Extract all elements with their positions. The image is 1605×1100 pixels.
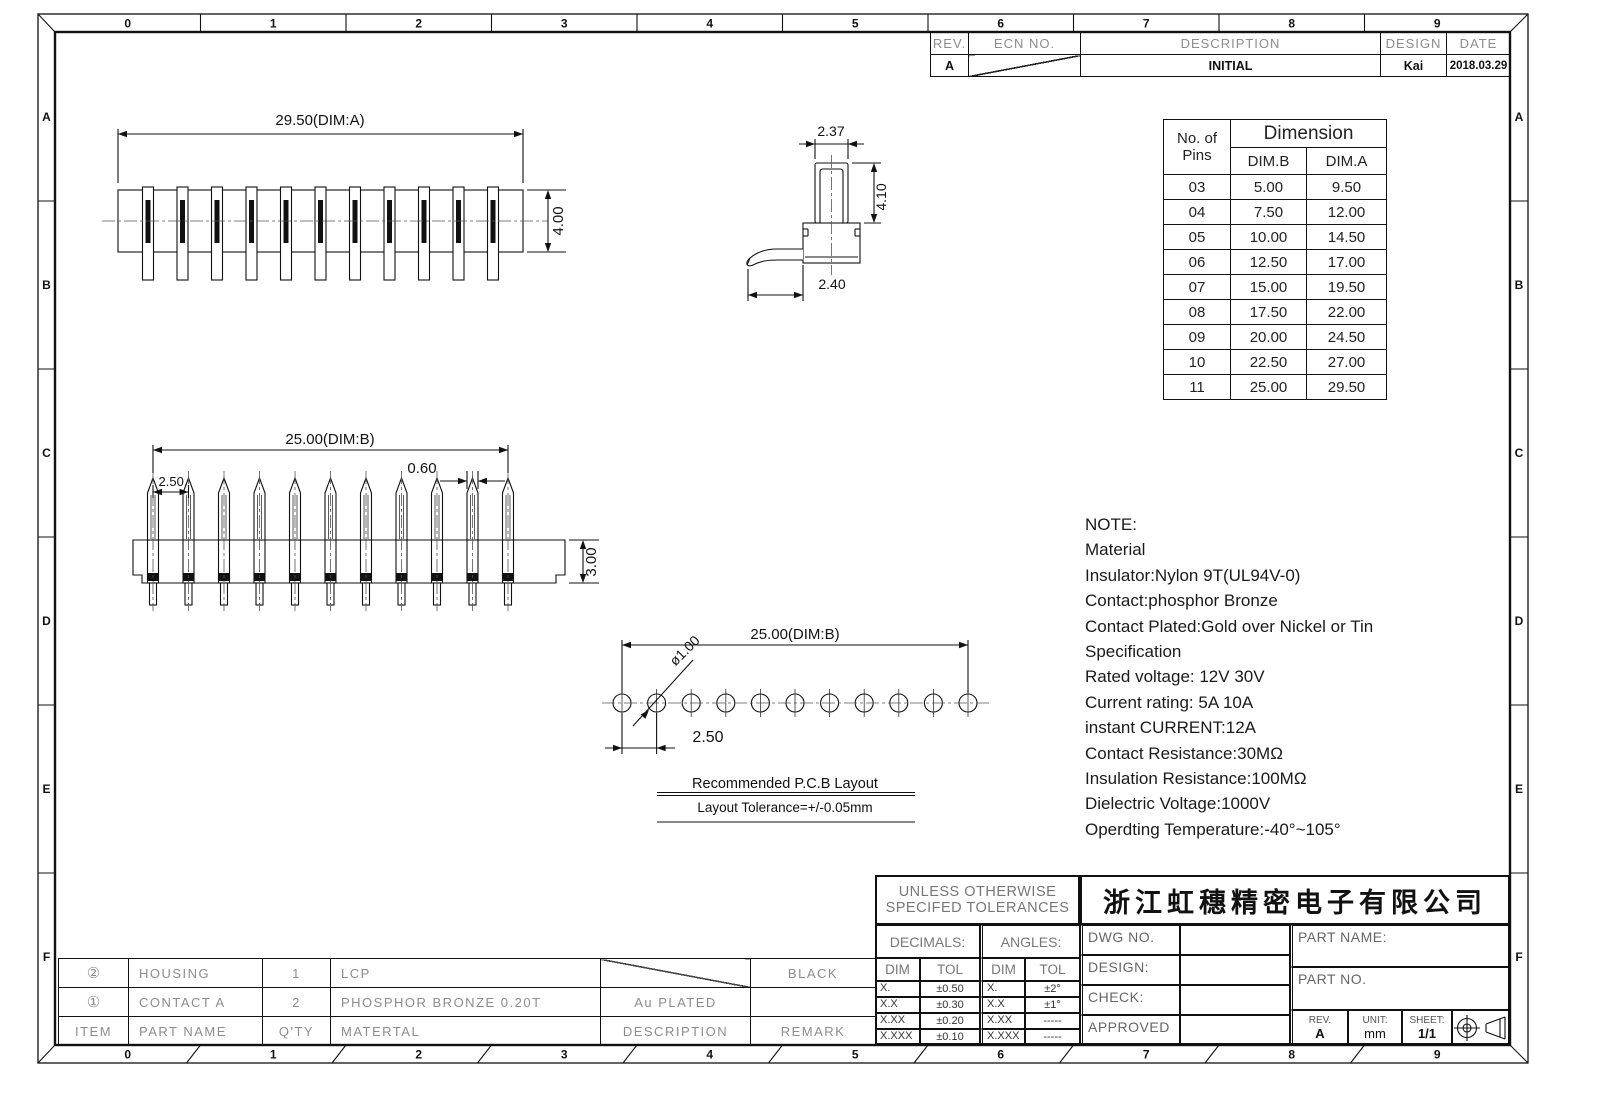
table-row: 0715.0019.50 [1164, 275, 1387, 300]
dim-label: A [42, 110, 51, 124]
parts-header-row: ITEM PART NAME Q'TY MATERTAL DESCRIPTION… [59, 1017, 876, 1046]
tol-val: ±0.10 [920, 1029, 980, 1045]
dim-label: F [1515, 950, 1522, 964]
date-value: 2018.03.29 [1447, 55, 1511, 77]
note-line: Insulator:Nylon 9T(UL94V-0) [1085, 563, 1525, 588]
dim-label: 0.60 [407, 460, 436, 477]
dim-label: 3 [561, 1048, 568, 1062]
dim-label: A [1515, 110, 1524, 124]
dim-label: 6 [997, 17, 1004, 31]
tol-dim: X. [980, 981, 1025, 997]
tol-val: ±0.50 [920, 981, 980, 997]
dim-label: 2.50 [692, 729, 723, 746]
dim-label: 7 [1143, 1048, 1150, 1062]
dim-label: 2 [415, 1048, 422, 1062]
ecn-value [969, 55, 1081, 77]
tol-val: ----- [1025, 1029, 1080, 1045]
tol-val: ±1° [1025, 997, 1080, 1013]
ecn-header: ECN NO. [969, 33, 1081, 55]
note-line: Specification [1085, 639, 1525, 664]
dimb-header: DIM.B [1231, 148, 1307, 175]
tol-val: ±2° [1025, 981, 1080, 997]
pins-header: No. of Pins [1164, 120, 1231, 175]
projection-symbol-icon [1452, 1010, 1510, 1045]
dim-label: ø1.00 [666, 632, 703, 669]
rev-field: REV.A [1290, 1010, 1348, 1045]
date-header: DATE [1447, 33, 1511, 55]
table-row: ② HOUSING 1 LCP BLACK [59, 959, 876, 988]
dim-label: 8 [1288, 17, 1295, 31]
rev-header: REV. [931, 33, 969, 55]
note-line: Operdting Temperature:-40°~105° [1085, 817, 1525, 842]
tol-dim: X.XX [875, 1013, 920, 1029]
table-row: 0920.0024.50 [1164, 325, 1387, 350]
dim-label: Recommended P.C.B Layout [692, 776, 878, 792]
dim-label: 8 [1288, 1048, 1295, 1062]
design-value [1180, 955, 1290, 985]
dim-label: B [1515, 278, 1524, 292]
dim-label: 7 [1143, 17, 1150, 31]
dim-label: 25.00(DIM:B) [285, 431, 374, 448]
unit-field: UNIT:mm [1348, 1010, 1402, 1045]
dim-label: 4.10 [873, 183, 889, 210]
note-line: Insulation Resistance:100MΩ [1085, 766, 1525, 791]
dim-label: C [1515, 446, 1524, 460]
tol-header: TOL [920, 958, 980, 981]
note-line: Contact Plated:Gold over Nickel or Tin [1085, 614, 1525, 639]
notes-block: NOTE: Material Insulator:Nylon 9T(UL94V-… [1085, 512, 1525, 842]
dim-label: 9 [1434, 1048, 1441, 1062]
dwg-no-value [1180, 925, 1290, 955]
note-line: NOTE: [1085, 512, 1525, 537]
company-name: 浙江虹穗精密电子有限公司 [1080, 875, 1510, 925]
tol-val: ±0.20 [920, 1013, 980, 1029]
tol-val: ----- [1025, 1013, 1080, 1029]
angles-label: ANGLES: [980, 925, 1080, 958]
dimension-table: No. of Pins Dimension DIM.B DIM.A 035.00… [1163, 119, 1387, 400]
tol-dim: X.XXX [980, 1029, 1025, 1045]
note-line: Contact Resistance:30MΩ [1085, 741, 1525, 766]
note-line: Material [1085, 537, 1525, 562]
dim-label: 3.00 [583, 547, 600, 576]
note-line: Dielectric Voltage:1000V [1085, 791, 1525, 816]
dim-label: 4 [706, 17, 713, 31]
dim-header: DIM [980, 958, 1025, 981]
approved-value [1180, 1015, 1290, 1045]
description-header: DESCRIPTION [1081, 33, 1381, 55]
dim-label: 2.50. [159, 474, 188, 489]
design-label: DESIGN: [1080, 955, 1180, 985]
table-row: 035.009.50 [1164, 175, 1387, 200]
sheet-field: SHEET:1/1 [1402, 1010, 1452, 1045]
table-row: ① CONTACT A 2 PHOSPHOR BRONZE 0.20T Au P… [59, 988, 876, 1017]
note-line: instant CURRENT:12A [1085, 715, 1525, 740]
check-value [1180, 985, 1290, 1015]
dim-label: 0 [124, 17, 131, 31]
tol-dim: X.XX [980, 1013, 1025, 1029]
design-header: DESIGN [1381, 33, 1447, 55]
table-row: 0510.0014.50 [1164, 225, 1387, 250]
decimals-label: DECIMALS: [875, 925, 980, 958]
dim-label: F [43, 950, 50, 964]
tol-val: ±0.30 [920, 997, 980, 1013]
table-row: 0817.5022.00 [1164, 300, 1387, 325]
dim-label: B [42, 278, 51, 292]
dim-label: 0 [124, 1048, 131, 1062]
pcb-layout-view: 25.00(DIM:B)ø1.002.50Recommended P.C.B L… [600, 618, 1020, 833]
dim-label: 5 [852, 1048, 859, 1062]
dim-label: 6 [997, 1048, 1004, 1062]
drawing-sheet: 01234567890123456789ABCDEFABCDEF 29.50(D… [0, 0, 1605, 1100]
check-label: CHECK: [1080, 985, 1180, 1015]
tol-dim: X.XXX [875, 1029, 920, 1045]
dim-label: 2 [415, 17, 422, 31]
table-row: 047.5012.00 [1164, 200, 1387, 225]
parts-table: ② HOUSING 1 LCP BLACK ① CONTACT A 2 PHOS… [58, 958, 876, 1046]
dim-label: 1 [270, 17, 277, 31]
part-name-field: PART NAME: [1290, 925, 1510, 967]
dim-label: 4.00 [550, 206, 567, 235]
dim-label: 29.50(DIM:A) [275, 112, 364, 129]
connector-front-view: 25.00(DIM:B)2.50.0.603.00 [125, 423, 610, 618]
tolerance-note: UNLESS OTHERWISE SPECIFED TOLERANCES [875, 875, 1080, 925]
tol-dim: X.X [980, 997, 1025, 1013]
dim-label: C [42, 446, 51, 460]
note-line: Current rating: 5A 10A [1085, 690, 1525, 715]
connector-side-view: 2.374.102.40 [723, 123, 913, 313]
dimension-header: Dimension [1231, 120, 1387, 148]
dwg-no-label: DWG NO. [1080, 925, 1180, 955]
table-row: 1022.5027.00 [1164, 350, 1387, 375]
dim-label: E [42, 782, 50, 796]
tol-dim: X. [875, 981, 920, 997]
description-value: INITIAL [1081, 55, 1381, 77]
dim-label: 2.40 [818, 276, 845, 292]
dim-label: 9 [1434, 17, 1441, 31]
tol-dim: X.X [875, 997, 920, 1013]
dim-label: 1 [270, 1048, 277, 1062]
dim-label: 3 [561, 17, 568, 31]
approved-label: APPROVED [1080, 1015, 1180, 1045]
note-line: Rated voltage: 12V 30V [1085, 664, 1525, 689]
design-value: Kai [1381, 55, 1447, 77]
dim-label: 25.00(DIM:B) [750, 626, 839, 643]
connector-top-view: 29.50(DIM:A)4.00 [100, 105, 580, 300]
part-no-field: PART NO. [1290, 967, 1510, 1010]
note-line: Contact:phosphor Bronze [1085, 588, 1525, 613]
dima-header: DIM.A [1307, 148, 1387, 175]
dim-label: 5 [852, 17, 859, 31]
dim-label: Layout Tolerance=+/-0.05mm [697, 800, 872, 815]
revision-table: REV. ECN NO. DESCRIPTION DESIGN DATE A I… [930, 32, 1511, 77]
dim-header: DIM [875, 958, 920, 981]
dim-label: 4 [706, 1048, 713, 1062]
table-row: 1125.0029.50 [1164, 375, 1387, 400]
dim-label: D [42, 614, 51, 628]
third-angle-projection-icon [1453, 1011, 1509, 1044]
dim-label: 2.37 [817, 123, 844, 139]
rev-value: A [931, 55, 969, 77]
revision-row: A INITIAL Kai 2018.03.29 [931, 55, 1511, 77]
tol-header: TOL [1025, 958, 1080, 981]
table-row: 0612.5017.00 [1164, 250, 1387, 275]
